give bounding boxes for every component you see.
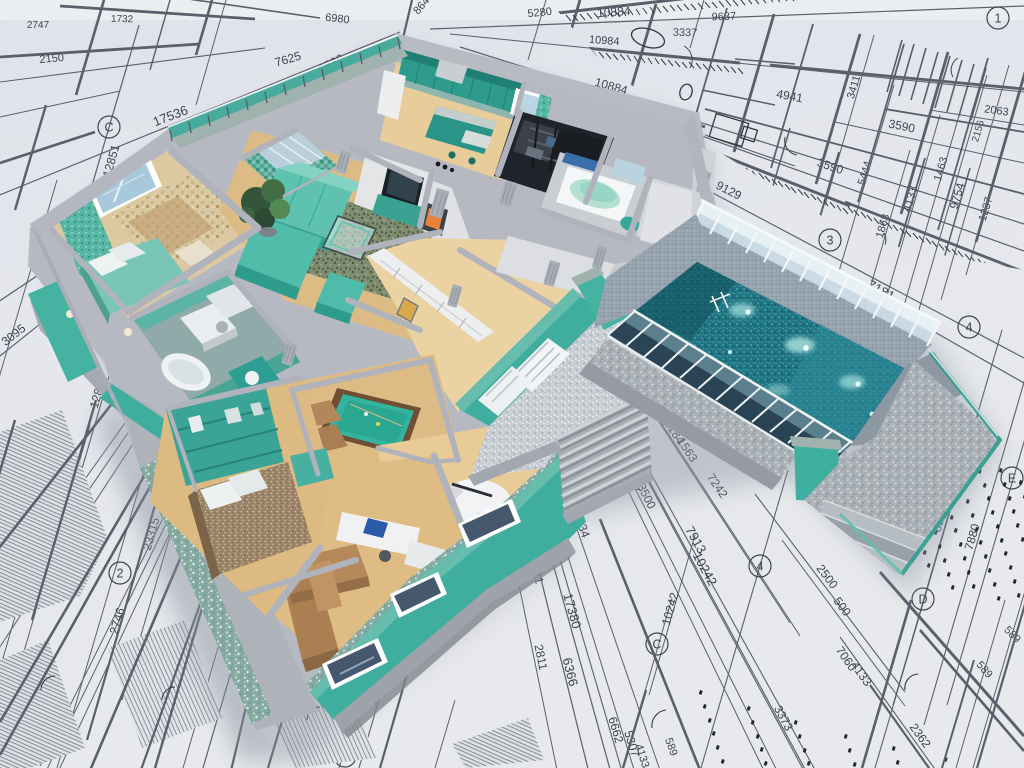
- svg-text:1732: 1732: [111, 14, 134, 26]
- svg-text:10984: 10984: [589, 34, 620, 48]
- svg-text:5280: 5280: [527, 6, 553, 20]
- svg-text:D: D: [918, 593, 927, 607]
- svg-text:4: 4: [757, 560, 764, 574]
- svg-text:C: C: [652, 638, 661, 652]
- svg-text:C: C: [104, 121, 113, 135]
- svg-text:E: E: [1008, 472, 1016, 486]
- svg-text:4: 4: [966, 321, 973, 335]
- svg-text:1: 1: [995, 12, 1002, 26]
- svg-text:3: 3: [827, 234, 834, 248]
- svg-text:3337: 3337: [673, 27, 698, 40]
- svg-text:2747: 2747: [27, 20, 50, 31]
- svg-text:2: 2: [117, 567, 124, 581]
